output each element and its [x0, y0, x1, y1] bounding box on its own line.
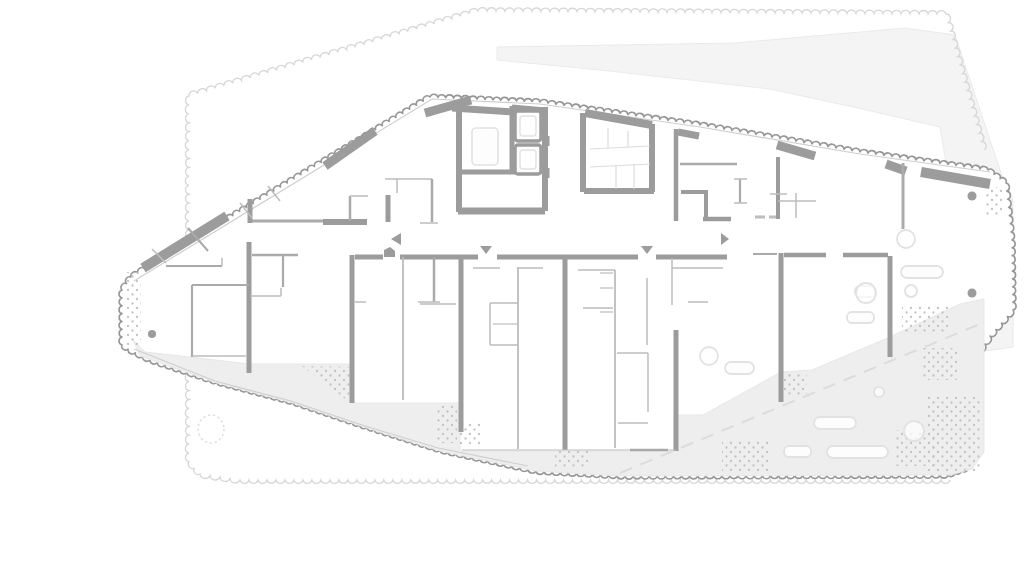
bench-planter-icon [827, 446, 888, 458]
elevator-car-icon [472, 128, 498, 165]
bench-planter-icon [901, 266, 943, 278]
round-table-icon [904, 421, 924, 441]
round-table-icon [700, 347, 718, 365]
column-dot-icon [148, 330, 156, 338]
bench-planter-icon [784, 446, 811, 457]
floor-plan-canvas [0, 0, 1024, 573]
round-table-icon [905, 285, 917, 297]
bench-planter-icon [814, 417, 856, 429]
column-dot-icon [968, 289, 977, 298]
floor-plan-page [0, 0, 1024, 573]
round-table-icon [897, 230, 915, 248]
round-table-icon [874, 387, 884, 397]
round-table-icon [856, 283, 876, 303]
column-dot-icon [968, 192, 977, 201]
bench-planter-icon [725, 362, 754, 374]
bench-planter-icon [847, 312, 874, 323]
landscape-cloud-icon [198, 415, 224, 443]
